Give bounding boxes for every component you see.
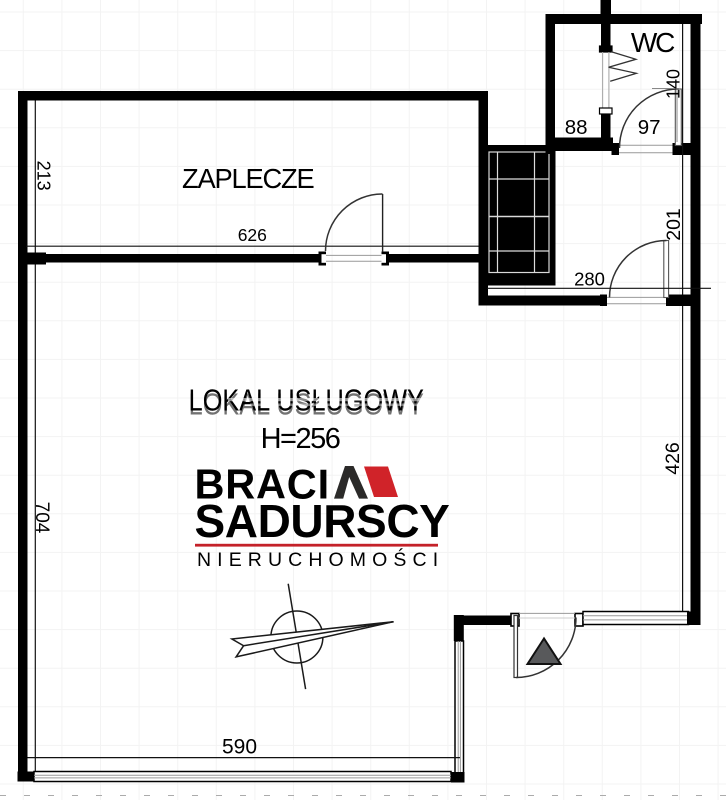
svg-text:590: 590 [222,736,257,759]
svg-text:426: 426 [662,442,684,475]
svg-text:140: 140 [664,69,684,99]
svg-text:280: 280 [574,269,605,290]
svg-text:704: 704 [31,502,52,534]
svg-text:213: 213 [34,161,54,191]
svg-text:NIERUCHOMOŚCI: NIERUCHOMOŚCI [197,547,444,571]
svg-text:97: 97 [638,116,661,139]
svg-text:88: 88 [565,116,588,139]
svg-text:ZAPLECZE: ZAPLECZE [182,163,314,194]
svg-text:WC: WC [631,27,675,58]
svg-text:201: 201 [663,208,685,241]
svg-text:626: 626 [238,225,267,245]
svg-text:H=256: H=256 [261,423,340,455]
svg-text:SADURSCY: SADURSCY [195,495,450,547]
